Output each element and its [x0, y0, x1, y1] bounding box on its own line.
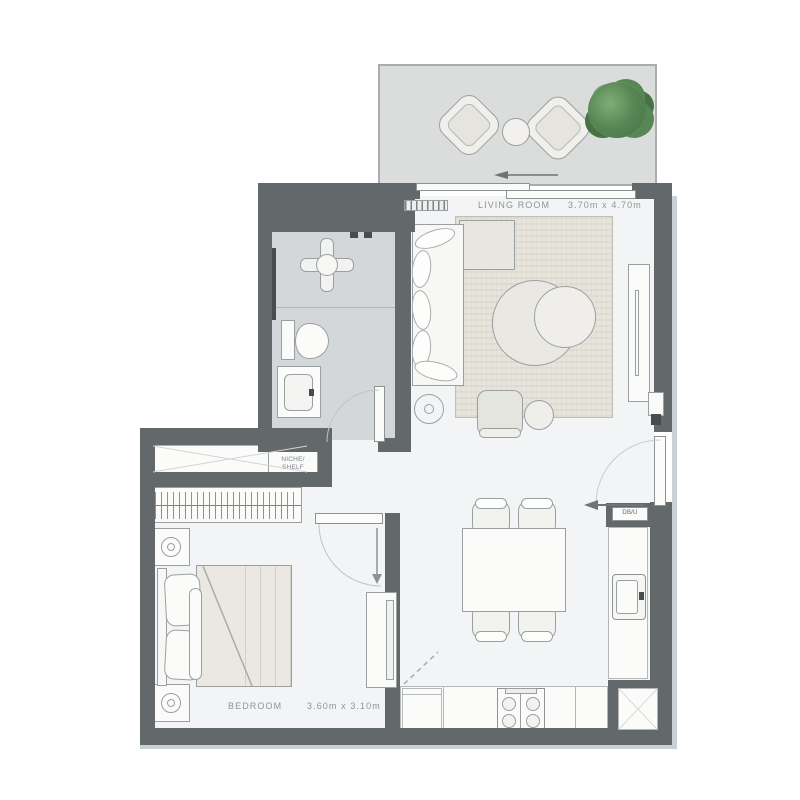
wall: [140, 472, 322, 487]
living-room-dimensions: 3.70m x 4.70m: [568, 200, 642, 210]
tv-cabinet-icon: [628, 264, 650, 402]
side-table-icon: [524, 400, 554, 430]
bedroom-label: BEDROOM: [228, 701, 282, 711]
service-shaft-icon: [618, 688, 658, 730]
shower-control: [350, 232, 358, 238]
burner-icon: [526, 714, 540, 728]
shower-head: [316, 254, 338, 276]
intercom-icon: [651, 414, 661, 425]
balcony-round-table-icon: [502, 118, 530, 146]
wall: [395, 232, 411, 452]
bedroom-door-leaf: [315, 513, 383, 524]
bed-mattress: [196, 565, 292, 687]
floor-lamp-inner: [424, 404, 434, 414]
sink-basin: [616, 580, 638, 614]
wall: [258, 183, 415, 232]
sink-faucet-icon: [639, 592, 644, 600]
floor-plan: NICHE/ SHELF: [0, 0, 800, 800]
chair-back: [521, 631, 553, 642]
tv-cabinet-door-line: [635, 290, 639, 376]
table-lamp-inner: [167, 699, 175, 707]
table-lamp-inner: [167, 543, 175, 551]
bedroom-dimensions: 3.60m x 3.10m: [307, 701, 381, 711]
counter-divider: [575, 687, 576, 731]
db-label: DB/U: [622, 510, 637, 517]
wall: [140, 728, 675, 745]
chair-back: [475, 631, 507, 642]
chair-back: [521, 498, 553, 509]
tree-icon: [588, 82, 646, 138]
chair-back: [475, 498, 507, 509]
wardrobe-icon: [150, 487, 302, 523]
counter-divider: [443, 687, 444, 731]
intercom-box: [648, 392, 664, 416]
chair-pad: [445, 101, 493, 149]
entrance-door-leaf: [654, 436, 666, 506]
tall-cabinet-inner: [386, 600, 394, 680]
wall: [140, 428, 332, 445]
coffee-table-icon: [534, 286, 596, 348]
niche-shelf-label: NICHE/ SHELF: [281, 456, 304, 472]
bed-pillow: [189, 588, 202, 680]
wall: [140, 428, 155, 745]
sliding-door-panel: [506, 190, 636, 199]
faucet-icon: [309, 389, 314, 396]
armchair-back: [479, 428, 521, 438]
toilet-tank: [281, 320, 295, 360]
cooktop-panel: [505, 688, 537, 694]
outer-trim-bottom: [140, 745, 677, 749]
dining-table-icon: [462, 528, 566, 612]
vent-grille-icon: [404, 200, 448, 211]
chair-pad: [533, 103, 584, 154]
outer-trim-right: [672, 196, 677, 745]
burner-icon: [502, 714, 516, 728]
appliance-line: [403, 694, 441, 695]
bathroom-door-leaf: [374, 386, 385, 442]
wardrobe-rail: [151, 505, 301, 506]
db-box: DB/U: [612, 507, 648, 521]
wall: [318, 443, 332, 487]
wall: [258, 232, 272, 452]
duvet-stripes: [245, 566, 291, 686]
burner-icon: [502, 697, 516, 711]
living-room-label: LIVING ROOM: [478, 200, 550, 210]
shower-control: [364, 232, 372, 238]
cooktop-center-line: [520, 689, 521, 729]
shower-divider: [272, 307, 395, 308]
sofa-corner-table: [459, 220, 515, 270]
burner-icon: [526, 697, 540, 711]
